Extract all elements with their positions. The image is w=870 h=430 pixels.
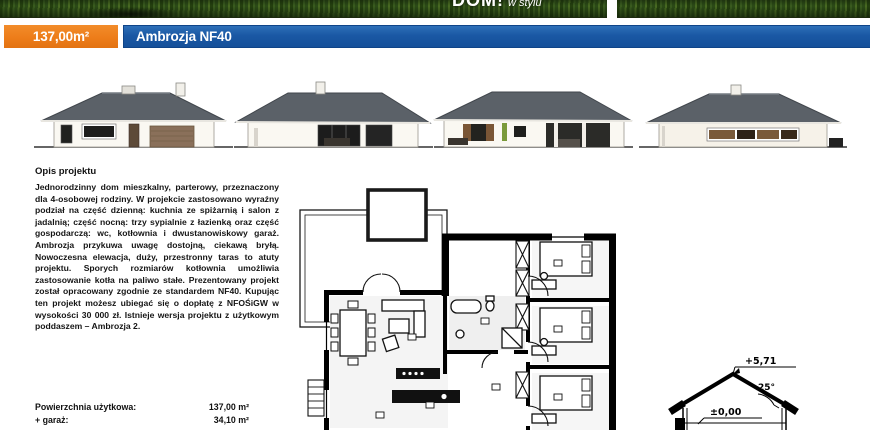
side-elevation-terrace (230, 80, 437, 160)
header-photo-right (617, 0, 870, 18)
logo-secondary-text: w stylu (508, 0, 542, 9)
brochure-page: DOM!w stylu 137,00m² Ambrozja NF40 (0, 0, 870, 430)
area-badge: 137,00m² (4, 25, 118, 48)
area-specs: Powierzchnia użytkowa: 137,00 m² + garaż… (35, 401, 249, 427)
logo-primary-text: DOM! (452, 0, 504, 10)
ground-level-label: ±0,00 (710, 407, 742, 418)
side-elevation-window-band (633, 80, 853, 160)
description-body: Jednorodzinny dom mieszkalny, parterowy,… (35, 182, 279, 333)
spec-label: + garaż: (35, 414, 69, 427)
project-description: Opis projektu Jednorodzinny dom mieszkal… (35, 166, 279, 333)
description-heading: Opis projektu (35, 166, 279, 177)
spec-row-garage: + garaż: 34,10 m² (35, 414, 249, 427)
floor-plan-drawing (288, 184, 644, 430)
roof-angle-label: 25° (758, 383, 775, 393)
area-badge-label: 137,00m² (33, 29, 89, 44)
spec-label: Powierzchnia użytkowa: (35, 401, 136, 414)
project-title-bar: Ambrozja NF40 (123, 25, 870, 48)
front-elevation-with-garage (30, 80, 237, 160)
spec-row-usable-area: Powierzchnia użytkowa: 137,00 m² (35, 401, 249, 414)
garden-elevation (430, 80, 637, 160)
ridge-level-label: +5,71 (745, 356, 776, 367)
spec-value: 137,00 m² (209, 401, 249, 414)
header-photo-left: DOM!w stylu (0, 0, 607, 18)
cross-section-drawing: +5,71 25° ±0,00 (668, 342, 870, 430)
dom-w-stylu-logo: DOM!w stylu (452, 0, 542, 11)
project-title: Ambrozja NF40 (136, 29, 232, 44)
spec-value: 34,10 m² (214, 414, 249, 427)
